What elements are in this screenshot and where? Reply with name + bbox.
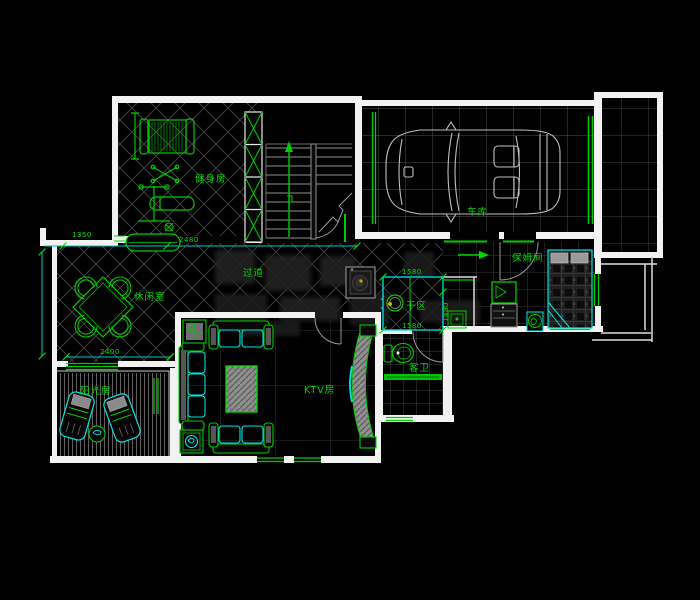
plant-table-icon [180,430,203,453]
speaker-icon [360,437,376,448]
potted-plant-icon [527,312,543,331]
lounge-sunroom-window [66,364,118,370]
floor-plan-canvas[interactable]: 健身房 车库 过道 休闲室 阳光房 KTV房 干区 客卫 保姆间 1350 24… [0,0,700,600]
wardrobe-icon [492,282,516,303]
stair-stringer [311,144,316,239]
lounge-label: 休闲室 [134,291,166,303]
stair-up-arrow-head [285,141,293,152]
dim-1350: 1350 [72,231,92,239]
dry-area-label: 干区 [406,301,427,312]
nanny-window [595,274,599,306]
coffee-table-icon [226,366,257,412]
garage-label: 车库 [467,206,488,218]
lamp-table-icon [183,320,206,343]
speaker-icon [360,325,376,336]
dim-2480: 2480 [179,236,199,244]
ktv-window-mullion [284,456,294,463]
sunroom-label: 阳光房 [80,385,112,397]
washing-machine-icon [346,267,375,298]
dim-1480: 1480 [442,302,450,322]
hallway-label: 过道 [243,267,264,279]
dim-1580-top: 1580 [402,268,422,276]
side-table-icon [89,426,105,442]
bed-icon [548,250,592,330]
stair-treads-right [316,148,352,184]
nanny-room-label: 保姆间 [512,252,544,264]
stairs [266,141,352,242]
patio-floor-tiles [601,98,657,252]
guest-bath-label: 客卫 [409,362,430,374]
dim-2400: 2400 [100,348,120,356]
dim-1580-bottom: 1580 [402,322,422,330]
dresser-icon [491,304,517,327]
gym-shelf-partition [245,112,262,242]
ktv-label: KTV房 [304,384,335,396]
gym-label: 健身房 [195,173,227,185]
